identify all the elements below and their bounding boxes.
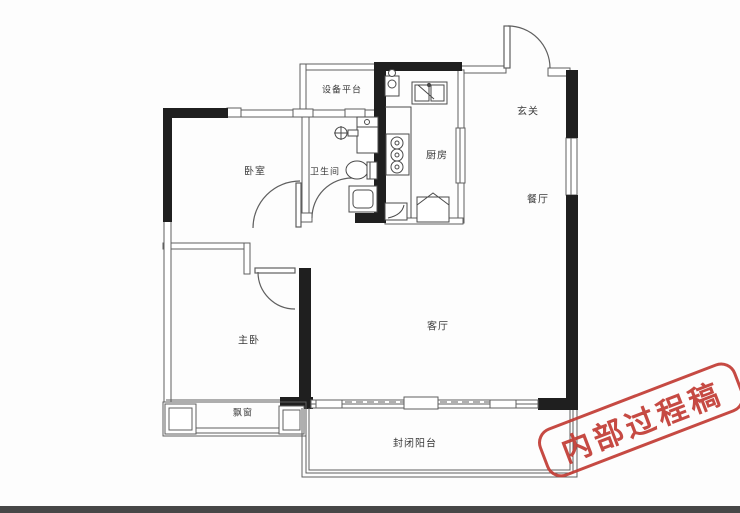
kitchen-sink-icon bbox=[412, 82, 447, 104]
bedroom-door bbox=[253, 181, 301, 228]
room-label-living-room: 客厅 bbox=[427, 318, 449, 333]
sliding-window bbox=[311, 397, 538, 409]
balcony-structure bbox=[302, 408, 577, 477]
master-bedroom-door bbox=[255, 268, 295, 309]
room-label-balcony: 封闭阳台 bbox=[393, 435, 437, 450]
room-label-bay-window: 飘窗 bbox=[233, 406, 253, 419]
room-label-kitchen: 厨房 bbox=[426, 147, 448, 162]
corner-basin-icon bbox=[385, 203, 407, 220]
washing-machine-icon bbox=[357, 117, 378, 153]
room-label-equipment-platform: 设备平台 bbox=[322, 83, 362, 96]
bathroom-fixtures bbox=[334, 117, 378, 212]
entry-door bbox=[504, 26, 550, 68]
faucet-icon bbox=[334, 126, 358, 140]
stove-icon bbox=[386, 134, 409, 175]
floorplan-image: 设备平台 卧室 卫生间 厨房 玄关 餐厅 主卧 客厅 飘窗 封闭阳台 内部过程稿 bbox=[0, 0, 740, 513]
room-label-entry: 玄关 bbox=[517, 103, 539, 118]
room-label-master-bedroom: 主卧 bbox=[238, 332, 260, 347]
shower-tray-icon bbox=[349, 186, 377, 212]
photo-bottom-edge bbox=[0, 506, 740, 513]
toilet-icon bbox=[346, 161, 377, 179]
flue-icon bbox=[385, 70, 399, 97]
room-label-bedroom: 卧室 bbox=[244, 163, 266, 178]
room-label-bathroom: 卫生间 bbox=[310, 165, 340, 178]
fridge-icon bbox=[417, 193, 449, 222]
room-label-dining: 餐厅 bbox=[527, 191, 549, 206]
bathroom-door bbox=[312, 178, 352, 218]
